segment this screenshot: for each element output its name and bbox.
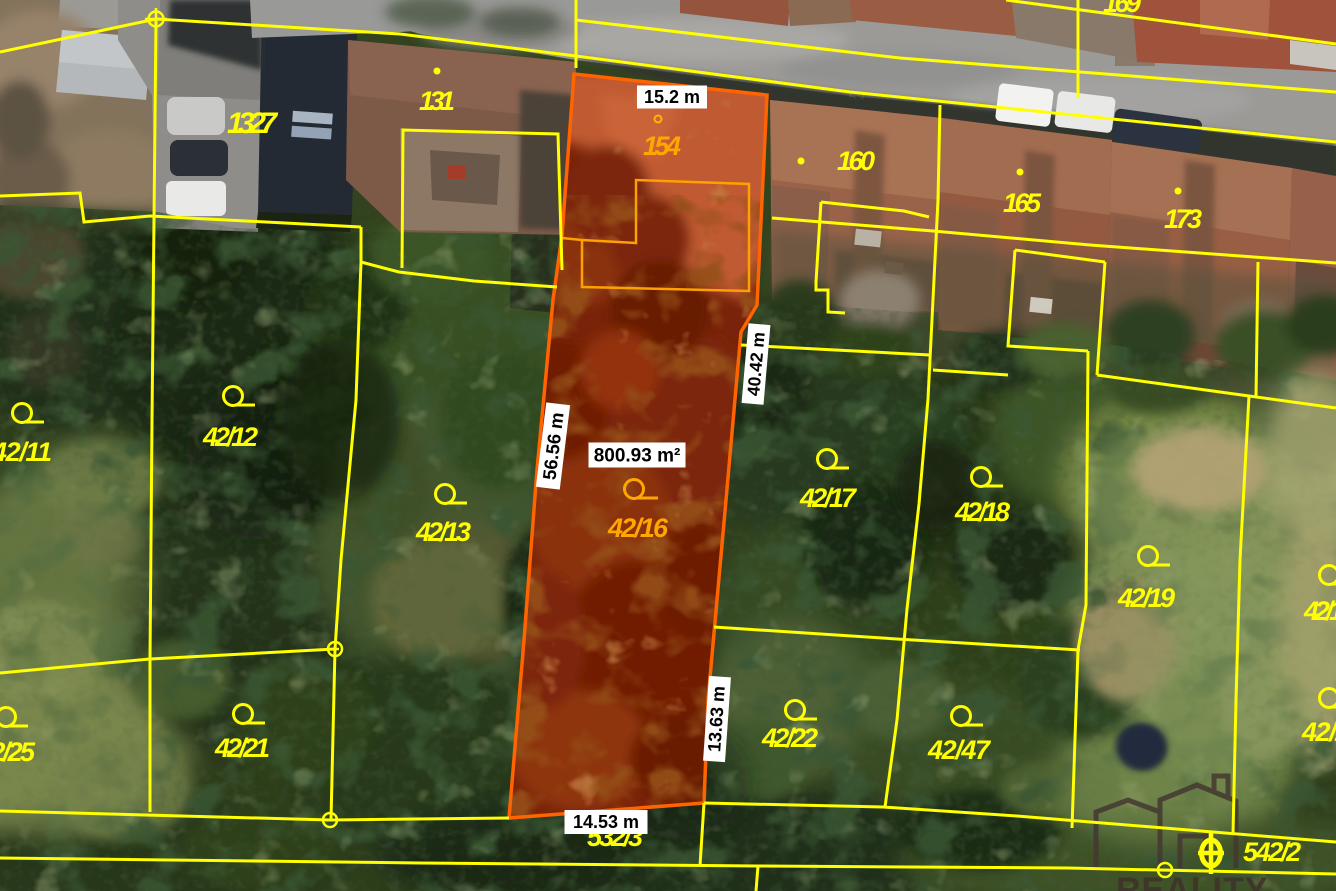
svg-text:42/1: 42/1 [1303,596,1336,626]
svg-text:131: 131 [419,86,455,116]
svg-text:173: 173 [1164,204,1202,234]
svg-text:15.2 m: 15.2 m [644,87,700,107]
svg-text:42/16: 42/16 [607,513,669,543]
svg-text:42/22: 42/22 [761,723,818,753]
svg-text:42/21: 42/21 [214,733,270,763]
svg-text:800.93 m²: 800.93 m² [594,446,681,467]
svg-text:542/2: 542/2 [1243,837,1301,867]
svg-text:42/25: 42/25 [0,737,36,767]
svg-text:169: 169 [1103,0,1141,18]
svg-text:154: 154 [643,131,681,161]
svg-text:1327: 1327 [227,107,278,140]
svg-text:165: 165 [1003,188,1042,218]
svg-text:42/47: 42/47 [927,735,992,765]
svg-text:42/12: 42/12 [202,422,258,452]
svg-text:REALITY: REALITY [1116,871,1268,891]
svg-text:42/2: 42/2 [1301,717,1336,747]
svg-text:42/17: 42/17 [799,483,858,513]
svg-text:42/13: 42/13 [415,517,471,547]
svg-text:42/11: 42/11 [0,437,52,467]
svg-text:160: 160 [837,146,875,176]
svg-text:42/18: 42/18 [954,497,1010,527]
svg-text:14.53 m: 14.53 m [573,812,639,832]
svg-text:42/19: 42/19 [1117,583,1175,613]
